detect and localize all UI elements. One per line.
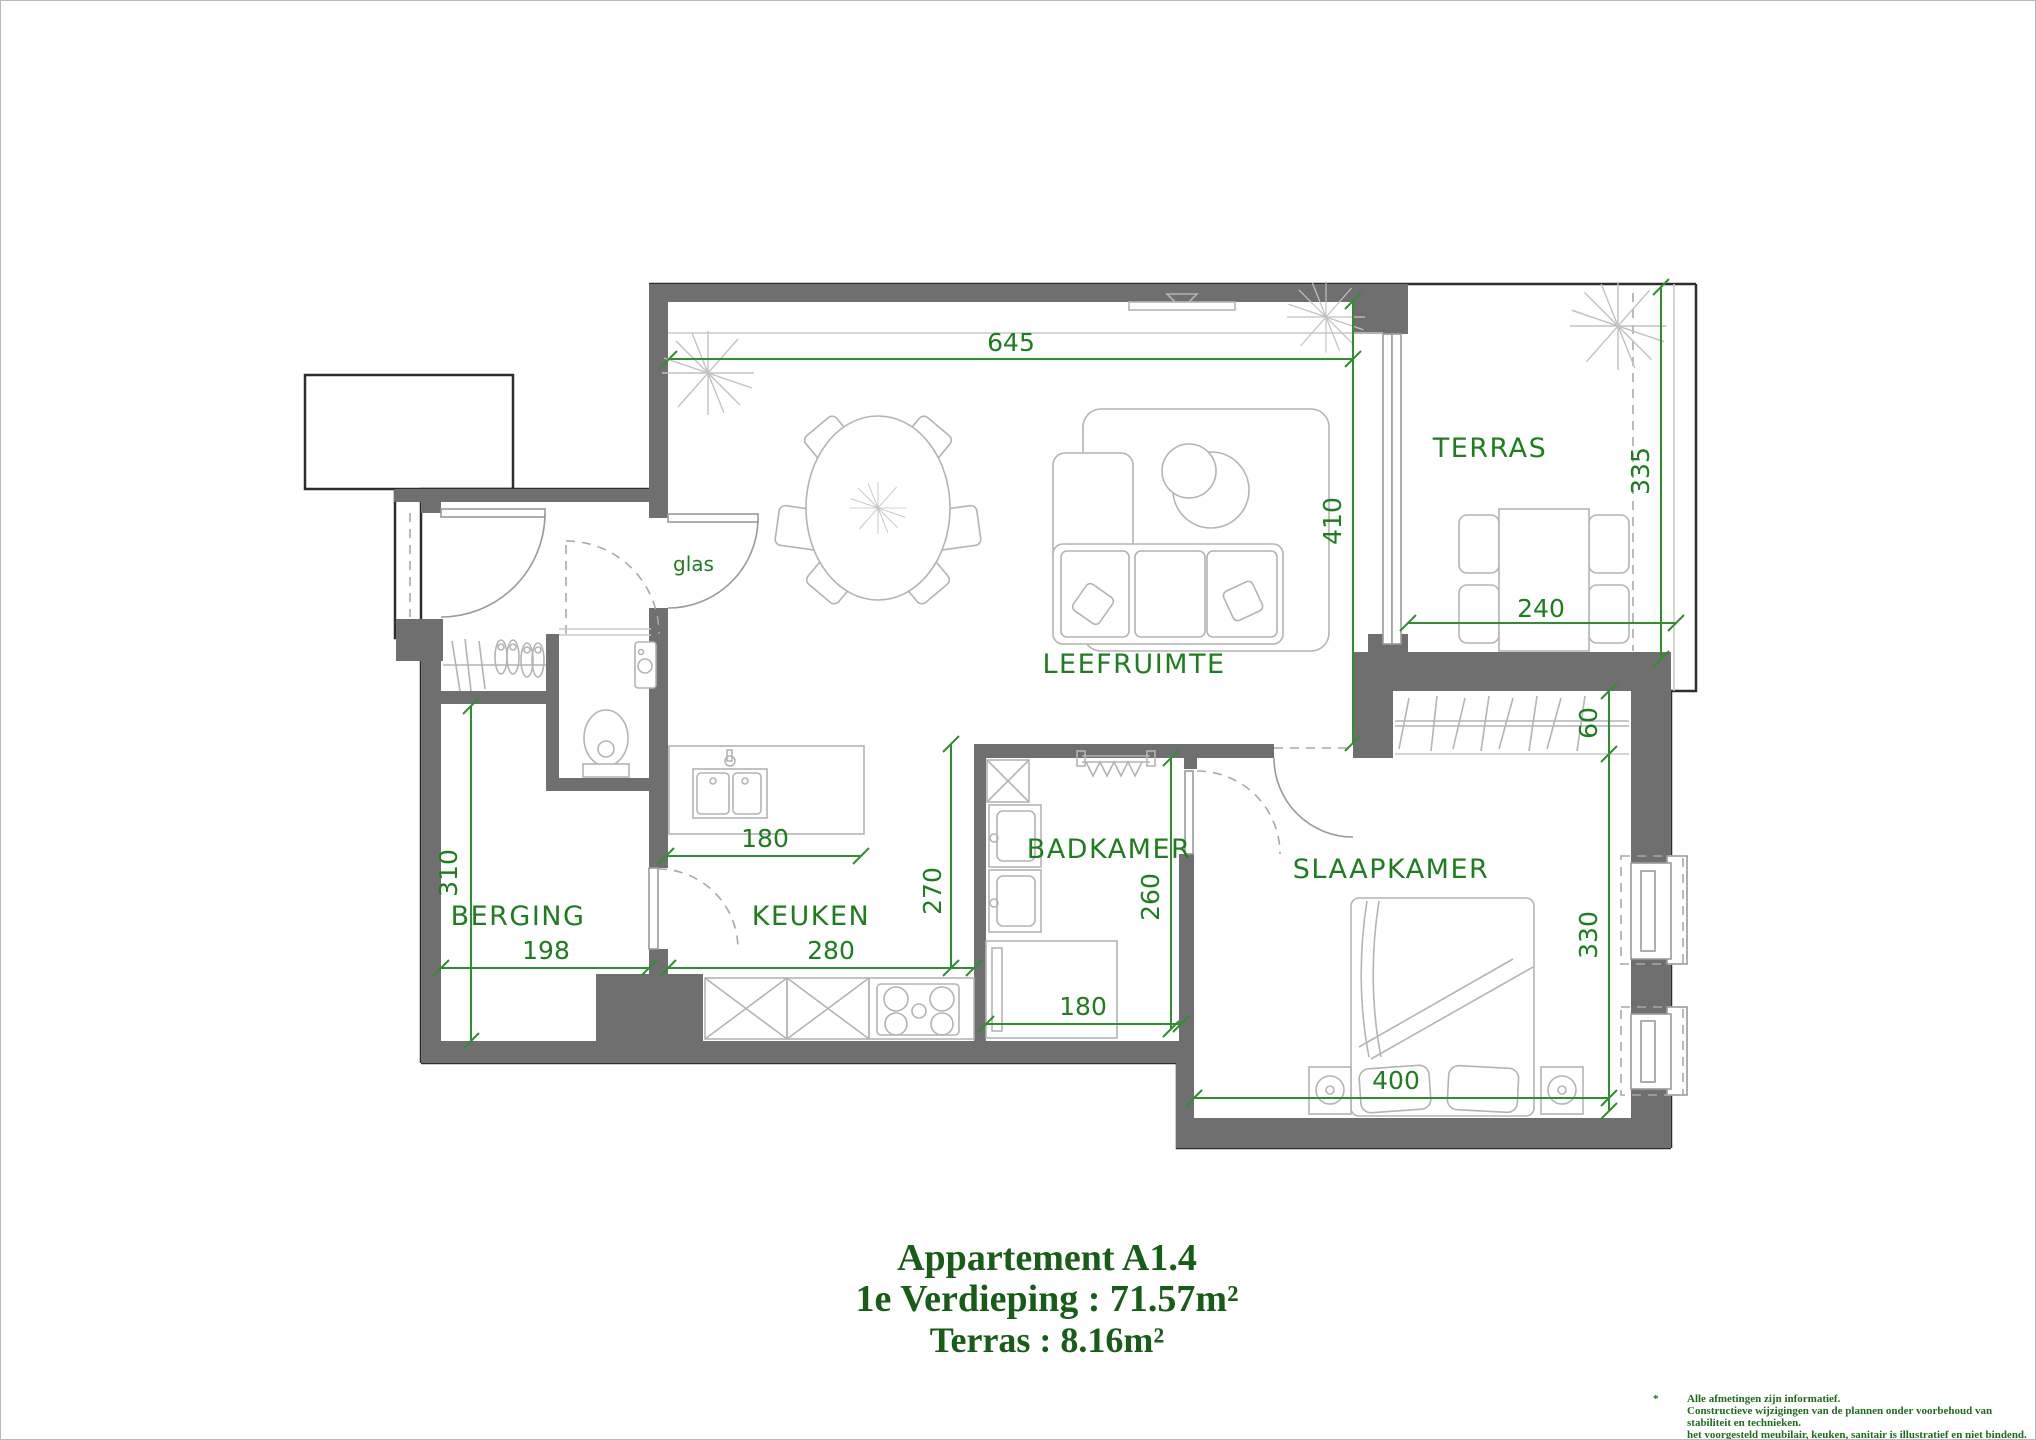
shoes-icon — [507, 640, 519, 674]
bathroom-door-swing-dashed — [1197, 771, 1280, 854]
dim-terras-depth: 335 — [1626, 447, 1655, 495]
storage-door-leaf — [649, 868, 658, 949]
window-frame — [1641, 871, 1655, 951]
dim-berging-depth: 310 — [434, 849, 463, 897]
tv — [1129, 302, 1235, 310]
room-label-slaapkamer: SLAAPKAMER — [1293, 854, 1490, 885]
toilet-tank — [583, 764, 629, 777]
floorplan-page: 645 410 335 240 310 198 180 270 280 260 … — [0, 0, 2036, 1440]
sink-detail — [742, 778, 748, 784]
pillow — [1447, 1065, 1519, 1113]
dim-badkamer-depth: 260 — [1136, 873, 1165, 921]
footnote-line: Constructieve wijzigingen van de plannen… — [1687, 1405, 2033, 1429]
entrance-door-swing — [441, 515, 545, 617]
dim-badkamer-width: 180 — [1059, 992, 1107, 1021]
floor-area-line: 1e Verdieping : 71.57m² — [747, 1279, 1347, 1320]
terrace-table — [1499, 509, 1589, 651]
light-fixture-icon — [662, 331, 754, 415]
dim-slaapkamer-width: 400 — [1372, 1066, 1420, 1095]
footnote-line: het voorgesteld meubilair, keuken, sanit… — [1687, 1429, 2033, 1440]
terrace-sliding-door — [1383, 334, 1401, 644]
room-label-berging: BERGING — [451, 901, 586, 932]
hall-furniture — [443, 639, 546, 691]
terrace-furniture — [1459, 509, 1629, 651]
glass-door-label: glas — [673, 552, 714, 576]
room-label-terras: TERRAS — [1432, 433, 1548, 464]
towel-radiator-icon — [1082, 756, 1150, 776]
footnote-lines: Alle afmetingen zijn informatief. Constr… — [1687, 1393, 2033, 1440]
clothes-hangers — [1399, 696, 1585, 751]
adjacent-structure-outline — [305, 375, 513, 489]
terrace-chair — [1459, 515, 1499, 573]
dim-terras-width: 240 — [1517, 594, 1565, 623]
terrace-chair — [1589, 515, 1629, 573]
light-fixture-icon — [1570, 282, 1667, 370]
footnote-marker: * — [1653, 1393, 1687, 1440]
living-room-furniture — [774, 294, 1329, 651]
disclaimer-footnote: * Alle afmetingen zijn informatief. Cons… — [1653, 1393, 2033, 1440]
shower-rail — [992, 948, 1002, 1031]
footnote-line: Alle afmetingen zijn informatief. — [1687, 1393, 2033, 1405]
wc-fixtures — [583, 642, 656, 777]
dim-keuken-width: 280 — [807, 936, 855, 965]
terrace-chair — [1589, 585, 1629, 643]
room-label-badkamer: BADKAMER — [1027, 834, 1192, 865]
dim-berging-width: 198 — [522, 936, 570, 965]
window-frame — [1641, 1021, 1655, 1082]
terrace-area-line: Terras : 8.16m² — [747, 1320, 1347, 1360]
wc-door-swing-dashed — [566, 541, 659, 634]
dim-slaapkamer-depth: 330 — [1574, 911, 1603, 959]
dim-leefruimte-depth: 410 — [1318, 497, 1347, 545]
entrance-door-leaf — [441, 509, 545, 517]
shoes-icon — [495, 640, 507, 674]
bedroom-furniture — [1309, 696, 1629, 1116]
dim-closet-depth: 60 — [1574, 707, 1603, 739]
kitchen-sink-unit — [693, 769, 767, 818]
coffee-table — [1162, 444, 1216, 498]
room-label-leefruimte: LEEFRUIMTE — [1042, 649, 1225, 680]
dim-keuken-depth: 270 — [918, 867, 947, 915]
dim-leefruimte-width: 645 — [987, 328, 1035, 357]
title-block: Appartement A1.4 1e Verdieping : 71.57m²… — [747, 1237, 1347, 1360]
entry-recess-outline — [395, 489, 422, 638]
room-label-keuken: KEUKEN — [752, 901, 871, 932]
sliding-glass-panel — [1383, 334, 1392, 644]
bedroom-door-swing — [1274, 758, 1353, 837]
sink-bowl — [697, 773, 729, 814]
storage-door-swing-dashed — [658, 869, 738, 949]
dim-keuken-island: 180 — [741, 824, 789, 853]
glass-door-leaf — [668, 514, 758, 522]
apartment-title: Appartement A1.4 — [747, 1237, 1347, 1279]
sink-detail — [710, 778, 716, 784]
floorplan-drawing: 645 410 335 240 310 198 180 270 280 260 … — [1, 1, 2036, 1440]
terrace-chair — [1459, 585, 1499, 643]
sliding-glass-panel — [1392, 334, 1401, 644]
